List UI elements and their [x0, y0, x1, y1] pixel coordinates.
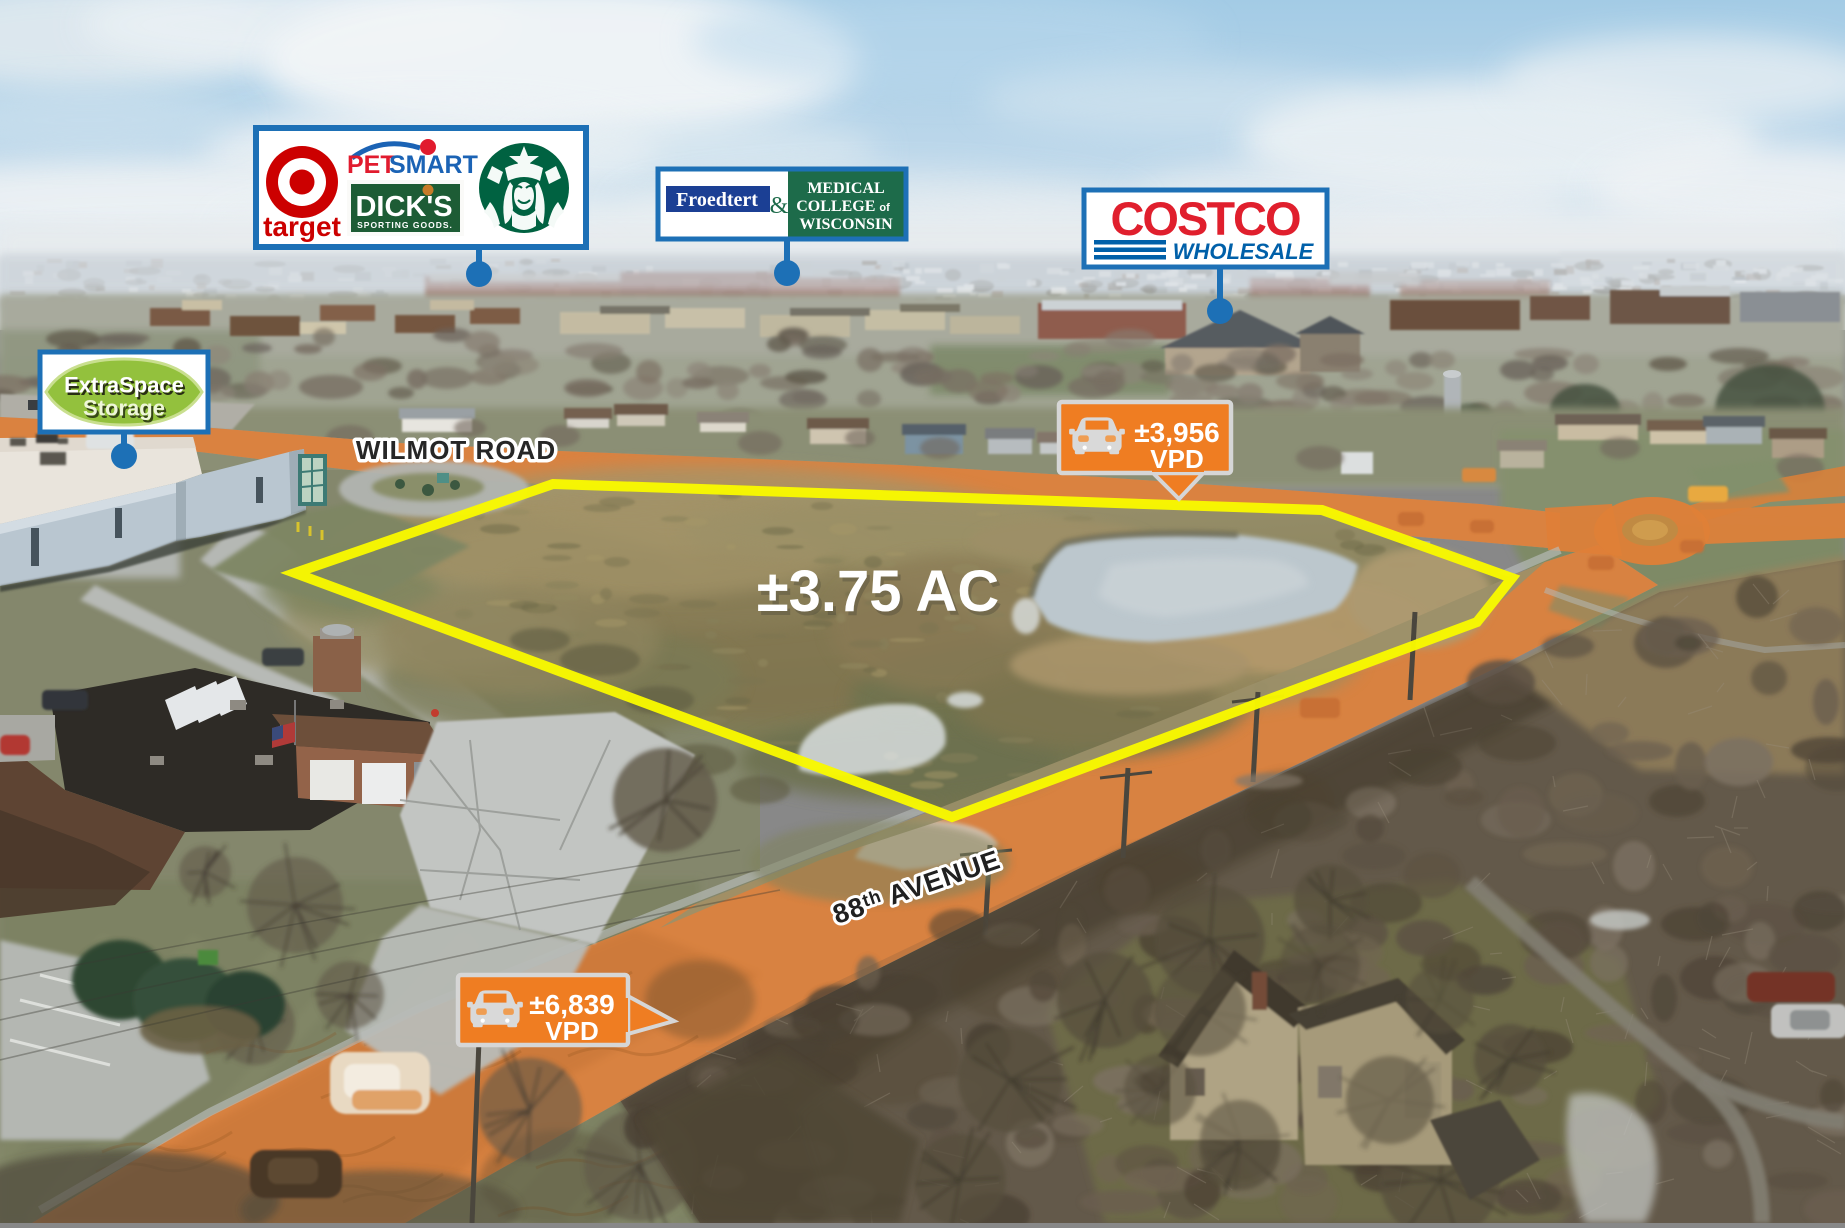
svg-text:MEDICAL: MEDICAL [807, 180, 884, 197]
svg-text:WHOLESALE: WHOLESALE [1173, 239, 1315, 264]
svg-text:WILMOT ROAD: WILMOT ROAD [356, 435, 556, 465]
svg-text:&: & [770, 193, 789, 219]
svg-text:VPD: VPD [545, 1016, 598, 1046]
svg-text:DICK'S: DICK'S [355, 191, 452, 223]
svg-text:COSTCO: COSTCO [1110, 192, 1300, 245]
svg-text:ExtraSpace: ExtraSpace [64, 373, 184, 398]
svg-text:±3.75 AC: ±3.75 AC [757, 559, 999, 624]
svg-text:VPD: VPD [1150, 444, 1203, 474]
svg-text:Froedtert: Froedtert [676, 189, 758, 211]
svg-text:Storage: Storage [83, 396, 165, 421]
svg-text:WISCONSIN: WISCONSIN [799, 216, 893, 233]
svg-text:COLLEGE of: COLLEGE of [796, 198, 890, 215]
svg-text:SPORTING GOODS.: SPORTING GOODS. [357, 220, 453, 230]
svg-text:target: target [263, 211, 341, 242]
svg-text:SMART: SMART [389, 151, 478, 179]
